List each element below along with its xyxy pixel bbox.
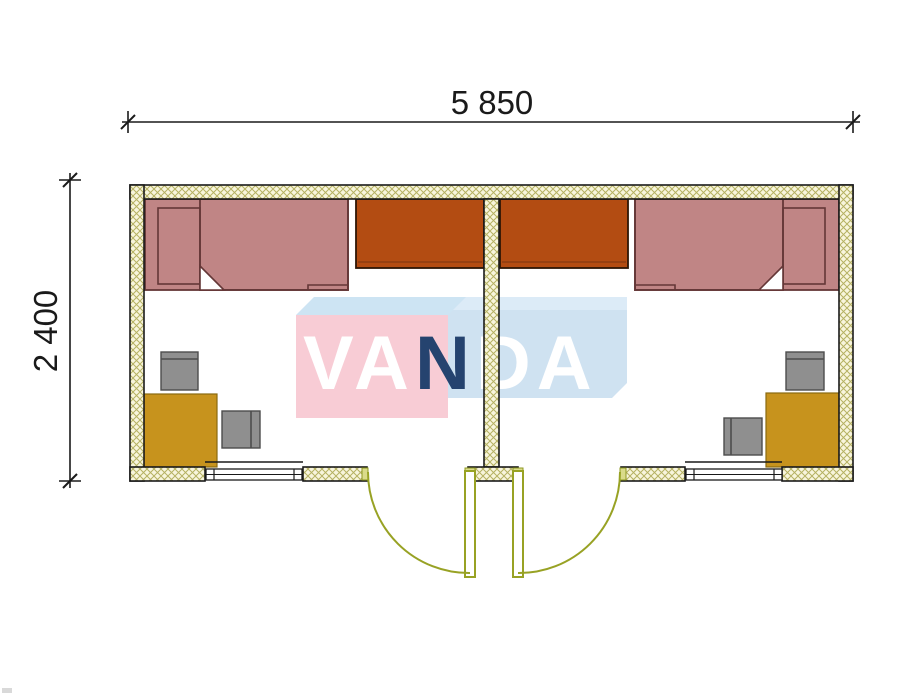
dimension-width: 5 850 <box>121 84 860 133</box>
watermark-text-n: N <box>415 321 476 406</box>
bottom-wall-segment <box>782 467 853 481</box>
floor-plan-canvas: VANDA <box>0 0 924 700</box>
chair <box>161 352 198 390</box>
watermark-pink-top-face <box>296 297 466 315</box>
bottom-wall-segment <box>303 467 367 481</box>
partition-wall <box>484 199 499 467</box>
chair <box>724 418 762 455</box>
wardrobe <box>500 199 628 268</box>
watermark-text-va: VA <box>303 321 415 406</box>
bottom-wall-segment <box>621 467 685 481</box>
watermark-brand-text: VANDA <box>303 321 598 406</box>
bed <box>635 199 839 290</box>
height-dimension-label: 2 400 <box>27 290 64 373</box>
door-swing-arc-right <box>518 472 620 573</box>
dimension-height: 2 400 <box>27 173 81 488</box>
chair <box>786 352 824 390</box>
floor-plan-drawing: VANDA <box>0 0 924 700</box>
vanda-watermark: VANDA <box>296 297 627 418</box>
desk <box>766 393 839 467</box>
bed <box>145 199 348 290</box>
doors <box>362 468 626 577</box>
left-wall <box>130 185 144 481</box>
bottom-wall-segment <box>130 467 205 481</box>
top-wall <box>130 185 853 199</box>
wardrobe <box>356 199 484 268</box>
width-dimension-label: 5 850 <box>451 84 534 121</box>
desk <box>144 394 217 467</box>
corner-watermark-artifact <box>2 688 12 693</box>
watermark-blue-top-band <box>448 297 627 310</box>
door-swing-arc-left <box>368 472 470 573</box>
window-left-room <box>205 462 303 480</box>
door-leaf-left <box>465 471 475 577</box>
chair <box>222 411 260 448</box>
right-wall <box>839 185 853 481</box>
door-leaf-right <box>513 471 523 577</box>
